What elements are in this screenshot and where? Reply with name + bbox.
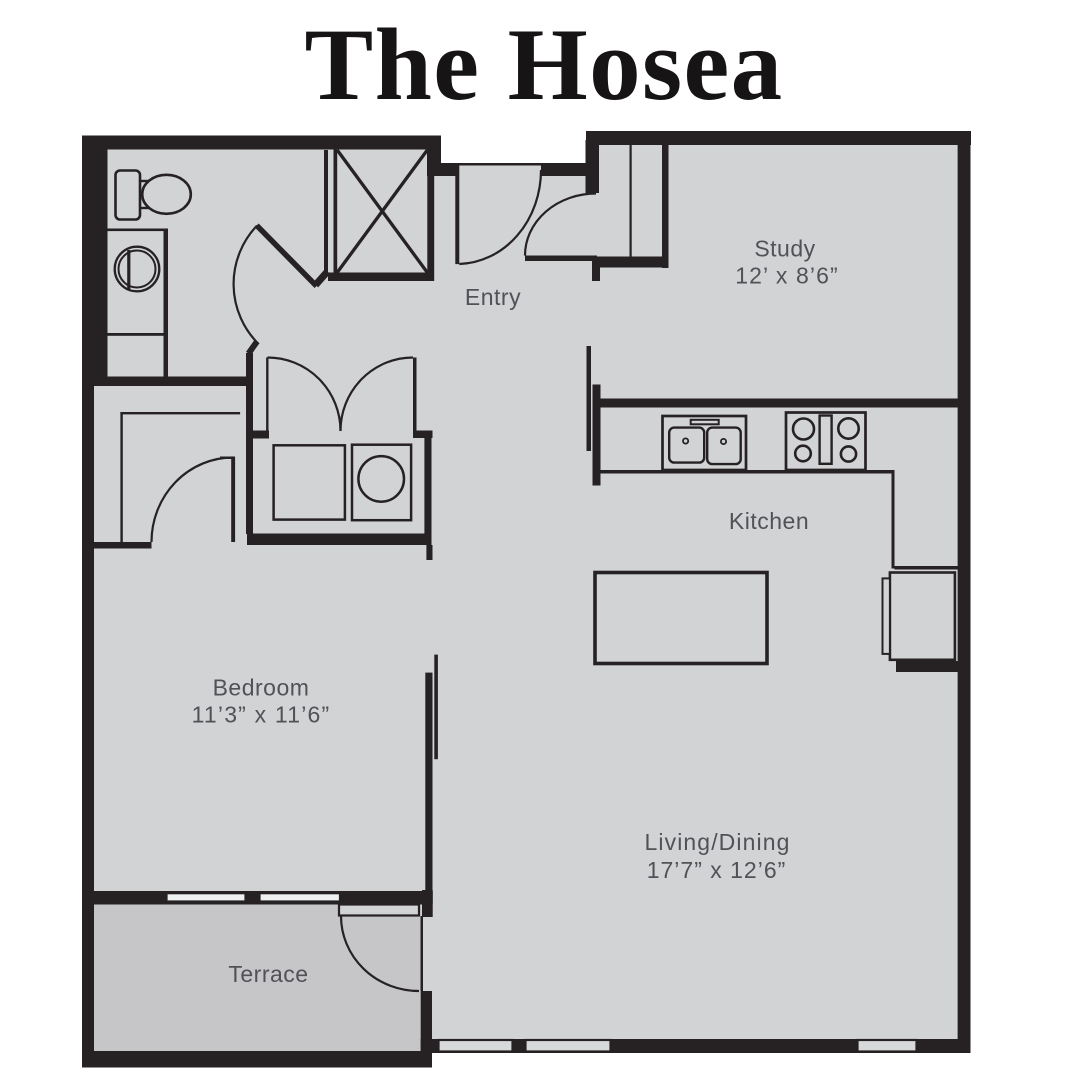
svg-text:17’7” x 12’6”: 17’7” x 12’6” [647,857,787,883]
svg-text:12’ x 8’6”: 12’ x 8’6” [735,263,838,289]
svg-text:Terrace: Terrace [228,961,308,987]
svg-text:Study: Study [754,236,815,262]
svg-text:11’3” x 11’6”: 11’3” x 11’6” [192,702,331,728]
svg-text:The Hosea: The Hosea [305,8,784,122]
svg-text:Bedroom: Bedroom [213,675,310,701]
svg-text:Entry: Entry [465,284,521,310]
svg-text:Kitchen: Kitchen [729,508,809,534]
svg-text:Living/Dining: Living/Dining [645,829,791,855]
